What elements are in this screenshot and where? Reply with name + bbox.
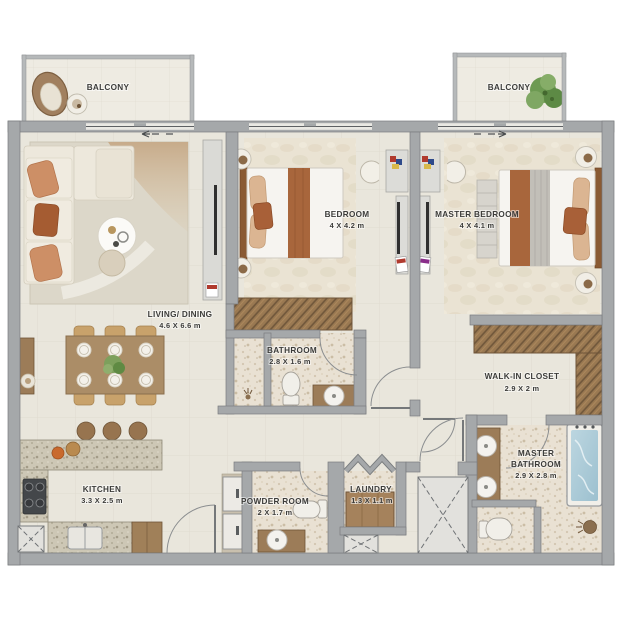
fridge-icon xyxy=(223,477,242,511)
label-balcony-right: BALCONY xyxy=(488,83,531,92)
vanity-chair-icon xyxy=(447,161,466,183)
stove-icon xyxy=(23,479,46,514)
window-living-balcony xyxy=(86,123,194,130)
service-shaft-large xyxy=(418,477,468,553)
powder-vanity-icon xyxy=(258,530,305,552)
master-toilet-icon xyxy=(479,518,512,540)
label-balcony-left: BALCONY xyxy=(87,83,130,92)
label-master-bedroom-name: MASTER BEDROOM xyxy=(435,210,519,219)
floor-plan-page: BALCONY BALCONY LIVING/ DINING 4.6 X 6.6… xyxy=(0,0,620,620)
label-kitchen-dims: 3.3 X 2.5 m xyxy=(81,496,123,505)
tv-icon xyxy=(214,185,217,255)
bar-stool-icon xyxy=(77,422,95,440)
window-master-balcony xyxy=(438,123,563,130)
label-living-dining-dims: 4.6 X 6.6 m xyxy=(159,321,201,330)
toilet-icon xyxy=(282,372,300,405)
bathroom-vanity-icon xyxy=(313,385,356,408)
label-walk-in-closet-dims: 2.9 X 2 m xyxy=(505,384,540,393)
window-bedroom xyxy=(249,123,372,130)
tv-unit-living-icon xyxy=(203,140,222,300)
label-master-bathroom-dims: 2.9 X 2.8 m xyxy=(515,471,557,480)
label-kitchen-name: KITCHEN xyxy=(83,485,122,494)
bedroom-tv-unit-icon xyxy=(395,196,408,274)
bar-stool-icon xyxy=(103,422,121,440)
closet-wardrobe-icon xyxy=(474,325,602,353)
bathtub-icon xyxy=(567,424,602,506)
service-shaft-kitchen xyxy=(18,526,44,552)
bed-runner xyxy=(288,168,310,258)
fruit-bowl-icon xyxy=(52,447,64,459)
label-living-dining-name: LIVING/ DINING xyxy=(148,310,213,319)
plate-icon xyxy=(66,442,80,456)
label-master-bathroom-line1: MASTER xyxy=(518,449,554,458)
console-table-icon xyxy=(20,338,35,394)
dining-set-icon xyxy=(66,326,164,405)
tall-appliances xyxy=(222,474,245,553)
kitchen-sink-icon xyxy=(68,523,102,549)
bar-stool-icon xyxy=(129,422,147,440)
label-bathroom-name: BATHROOM xyxy=(267,346,317,355)
label-laundry-dims: 1.3 X 1.1 m xyxy=(351,496,393,505)
bedroom-wardrobe-icon xyxy=(230,298,352,330)
floor-plan-drawing: BALCONY BALCONY LIVING/ DINING 4.6 X 6.6… xyxy=(0,0,620,620)
sofa-pillow xyxy=(33,203,60,237)
kitchen-island-counter xyxy=(20,440,162,470)
label-powder-room-dims: 2 X 1.7 m xyxy=(258,508,293,517)
vanity-chair-icon xyxy=(360,161,379,183)
service-shaft-small xyxy=(344,535,378,553)
label-laundry-name: LAUNDRY xyxy=(350,485,392,494)
label-bedroom-name: BEDROOM xyxy=(325,210,370,219)
freezer-icon xyxy=(223,514,242,549)
label-bathroom-dims: 2.8 X 1.6 m xyxy=(269,357,311,366)
label-bedroom-dims: 4 X 4.2 m xyxy=(330,221,365,230)
label-powder-room-name: POWDER ROOM xyxy=(241,497,309,506)
tv-icon xyxy=(397,202,400,254)
closet-wardrobe-icon xyxy=(576,353,602,415)
label-master-bathroom-line2: BATHROOM xyxy=(511,460,561,469)
label-walk-in-closet-name: WALK-IN CLOSET xyxy=(485,372,560,381)
label-master-bedroom-dims: 4 X 4.1 m xyxy=(460,221,495,230)
tv-icon xyxy=(426,202,429,254)
